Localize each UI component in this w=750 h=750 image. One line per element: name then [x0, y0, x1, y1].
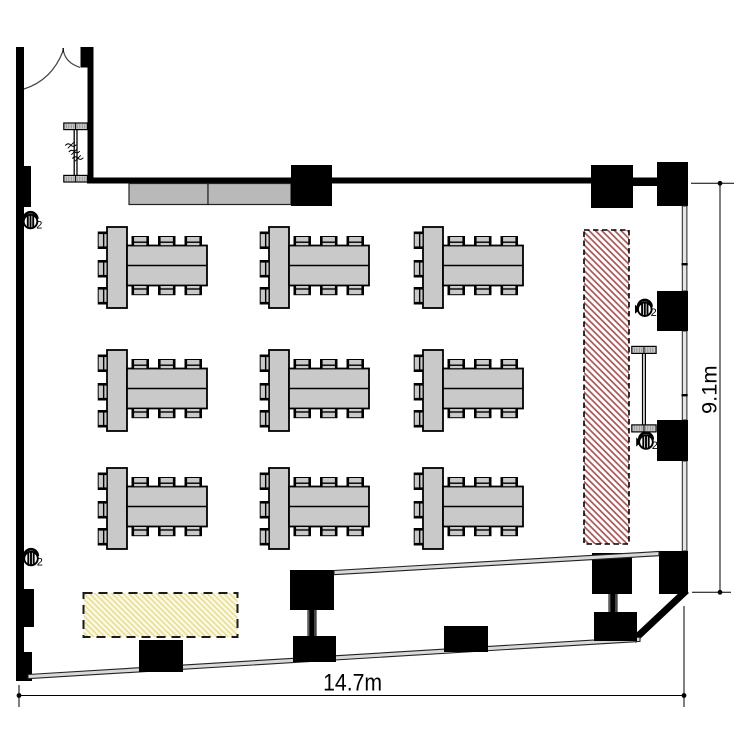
svg-text:2: 2 [37, 557, 43, 569]
svg-text:14.7m: 14.7m [323, 670, 382, 697]
svg-text:2: 2 [651, 307, 657, 319]
svg-text:2: 2 [36, 220, 42, 232]
svg-text:2: 2 [652, 440, 658, 452]
svg-text:9.1m: 9.1m [699, 365, 722, 414]
